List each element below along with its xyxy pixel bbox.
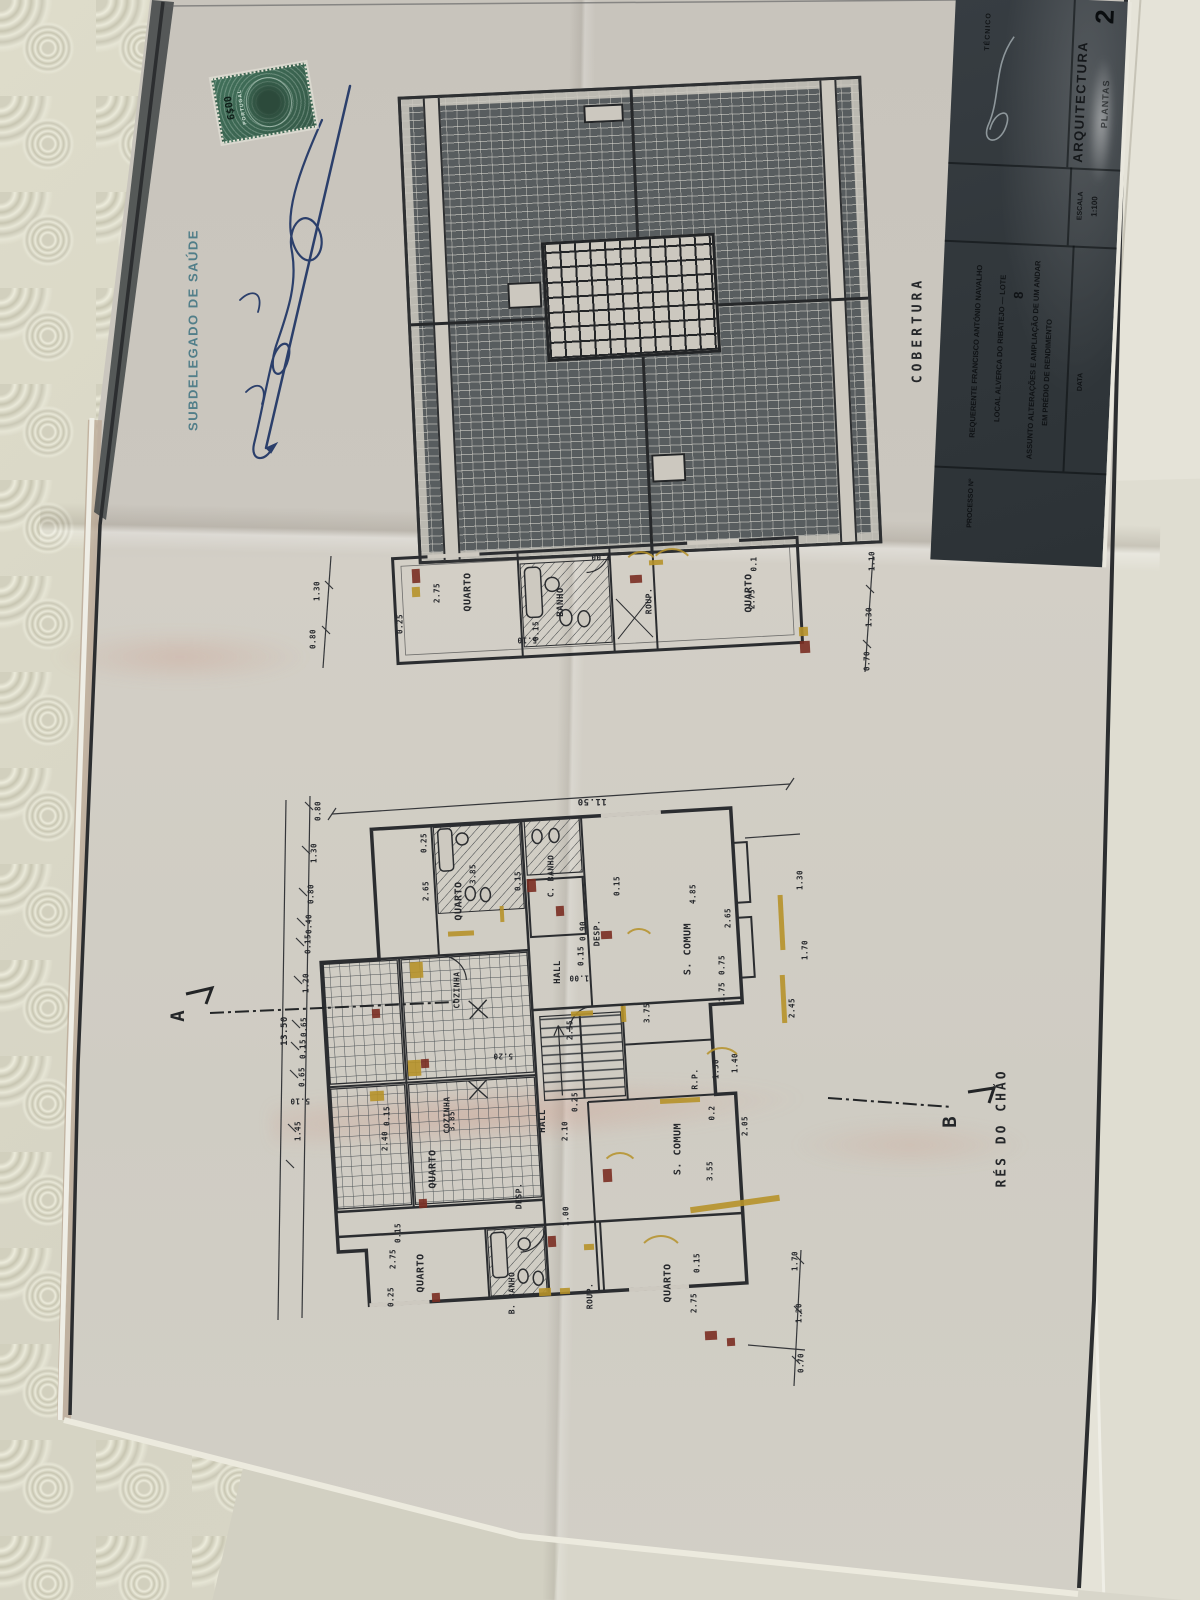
dim-label: 2.75 — [690, 1293, 699, 1313]
dim-label: 2.65 — [724, 908, 733, 928]
dim-label: 0.25 — [396, 614, 405, 634]
dim-label: 2.55 — [566, 1020, 575, 1040]
wall-accent-yellow — [560, 1288, 570, 1295]
dim-label: 0.80 — [307, 884, 316, 904]
room-label-hall: HALL — [553, 960, 563, 984]
dim-label: 2.45 — [788, 998, 797, 1018]
room-label-roup: ROUP. — [586, 1283, 595, 1310]
wall-accent-yellow — [571, 1010, 593, 1016]
dim-label: 0.15 — [383, 1106, 392, 1126]
wall-accent-yellow — [621, 1006, 627, 1022]
dim-label: 2.75 — [389, 1249, 398, 1269]
dim-label: 0.90 — [579, 921, 588, 941]
dim-label: 0.80 — [314, 801, 323, 821]
dim-label: 0.15 — [693, 1253, 702, 1273]
dim-label: 0.25 — [571, 1092, 580, 1112]
room-label-desp: DESP. — [515, 1183, 524, 1210]
room-label-quarto: QUARTO — [463, 572, 474, 611]
dim-label: 0.65 — [300, 1017, 309, 1037]
dim-label: 1.30 — [865, 607, 874, 627]
wall-accent-yellow — [660, 1097, 700, 1104]
dim-label: 0.25 — [387, 1287, 396, 1307]
dim-label: 2.10 — [561, 1121, 570, 1141]
room-label-roup: ROUP. — [645, 588, 654, 615]
dim-label: 0.15 — [514, 871, 523, 891]
dim-label: 1.30 — [796, 870, 805, 890]
dim-label: 0.15 — [394, 1223, 403, 1243]
plan-annotations: QUARTOBANHOROUP.QUARTOQUARTOC. BANHODESP… — [0, 0, 1200, 1600]
dim-label: 1.30 — [313, 581, 322, 601]
door-swing-arc — [622, 928, 656, 962]
dim-label: 2.75 — [748, 589, 757, 609]
wall-accent-red — [421, 1059, 429, 1068]
dim-label: 1.70 — [801, 940, 810, 960]
room-label-s-comum: S. COMUM — [683, 923, 694, 975]
dim-label: 0.2 — [708, 1105, 717, 1120]
dim-label: 0.15 — [304, 934, 313, 954]
wall-accent-yellow — [412, 587, 421, 597]
dim-label: 1.75 — [718, 982, 727, 1002]
dim-label: 5.20 — [493, 1052, 513, 1061]
room-label-quarto: QUARTO — [454, 881, 465, 920]
wall-accent-yellow — [780, 975, 788, 1023]
wall-accent-red — [419, 1199, 427, 1208]
wall-accent-yellow — [778, 895, 786, 950]
dim-label: 1.20 — [795, 1303, 804, 1323]
dim-label: 0.15 — [613, 876, 622, 896]
wall-accent-red — [412, 569, 421, 583]
dim-label: 0.65 — [298, 1067, 307, 1087]
dim-label: 0.1 — [750, 556, 759, 571]
dim-label: 0.70 — [797, 1353, 806, 1373]
dim-label: 5.10 — [517, 636, 537, 645]
room-label-hall: HALL — [538, 1109, 548, 1133]
wall-accent-yellow — [690, 1195, 780, 1213]
dim-label: 0.15 — [299, 1039, 308, 1059]
room-label-banho: BANHO — [556, 587, 566, 617]
dim-label: 13.50 — [280, 1016, 290, 1046]
door-swing-arc — [648, 548, 696, 596]
wall-accent-red — [601, 931, 612, 940]
dim-label: 3.85 — [469, 864, 478, 884]
room-label-quarto: QUARTO — [416, 1253, 427, 1292]
room-label-s-comum: S. COMUM — [673, 1123, 684, 1175]
door-swing-arc — [636, 1235, 686, 1285]
dim-label: 1.45 — [294, 1121, 303, 1141]
dim-label: 1.30 — [310, 843, 319, 863]
wall-accent-red — [705, 1331, 717, 1341]
dim-label: 0.80 — [309, 629, 318, 649]
dim-label: 3.55 — [706, 1161, 715, 1181]
dim-label: 2.75 — [433, 583, 442, 603]
dim-label: 2.05 — [741, 1116, 750, 1136]
wall-accent-red — [800, 641, 811, 654]
room-label-rp: R.P. — [691, 1068, 700, 1089]
wall-accent-red — [527, 879, 537, 892]
room-label-cozinha: COZINHA — [453, 971, 462, 1008]
dim-label: 4.85 — [689, 884, 698, 904]
dim-label: 0.40 — [305, 914, 314, 934]
room-label-quarto: QUARTO — [428, 1149, 439, 1188]
wall-accent-red — [556, 906, 565, 916]
wall-accent-yellow — [448, 930, 474, 936]
dim-label: 2.40 — [381, 1131, 390, 1151]
dim-label: 0.70 — [863, 651, 872, 671]
wall-accent-yellow — [799, 627, 808, 636]
wall-accent-yellow — [408, 1060, 422, 1077]
dim-label: 2.65 — [422, 881, 431, 901]
wall-accent-yellow — [370, 1091, 385, 1102]
wall-accent-yellow — [500, 906, 505, 922]
wall-accent-yellow — [410, 962, 424, 979]
room-label-c-banho: C. BANHO — [547, 855, 556, 898]
door-swing-arc — [600, 1152, 640, 1192]
room-label-b-banho: B. BANHO — [508, 1272, 517, 1315]
dim-label: 11.50 — [577, 796, 607, 806]
dim-label: 1.20 — [302, 973, 311, 993]
dim-label: 3.85 — [448, 1111, 457, 1131]
wall-accent-red — [548, 1236, 557, 1247]
dim-label: 3.75 — [643, 1003, 652, 1023]
dim-label: 1.70 — [791, 1251, 800, 1271]
dim-label: 1.00 — [591, 553, 611, 562]
wall-accent-yellow — [584, 1244, 594, 1251]
dim-label: 0.15 — [577, 946, 586, 966]
door-swing-arc — [700, 1047, 744, 1091]
wall-accent-red — [727, 1338, 735, 1346]
dim-label: 0.25 — [420, 833, 429, 853]
dim-label: 0.75 — [718, 955, 727, 975]
dim-label: 5.10 — [290, 1097, 310, 1106]
dim-label: 1.10 — [868, 551, 877, 571]
wall-accent-yellow — [539, 1288, 551, 1297]
dim-label: 1.00 — [569, 974, 589, 983]
photo-of-architectural-plan: TÉCNICO ARQUITECTURA PLANTAS ESCALA 1:10… — [0, 0, 1200, 1600]
wall-accent-red — [432, 1293, 440, 1302]
dim-label: 1.00 — [562, 1206, 571, 1226]
wall-accent-red — [372, 1009, 380, 1018]
